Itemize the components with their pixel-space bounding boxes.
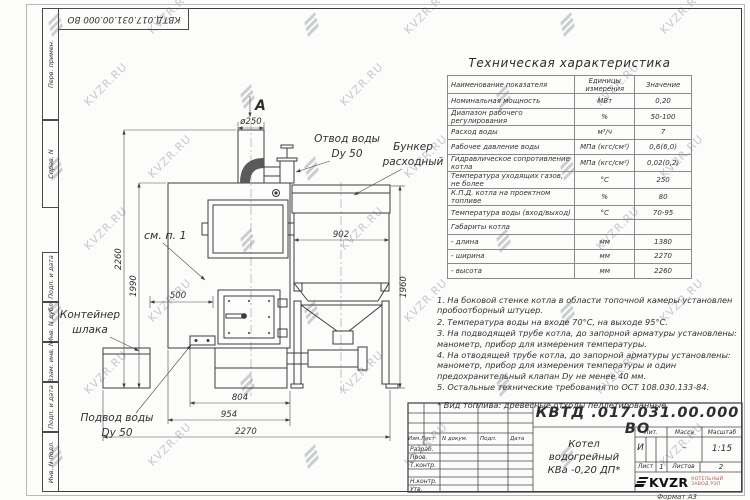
chimney-and-outlet xyxy=(238,130,297,183)
hdr-scale: Масштаб xyxy=(702,429,742,436)
hdr-doc: N докум. xyxy=(442,436,478,442)
strip-label: Справ. N xyxy=(47,149,55,178)
hdr-izm-list: Изм.Лист xyxy=(408,436,440,442)
dim-total-width: 2270 xyxy=(235,427,257,437)
note-3: 3. На подводящей трубе котла, до запорно… xyxy=(437,328,740,349)
dim-bunker-width: 902 xyxy=(333,230,349,240)
spec-col-units: Единицы измерения xyxy=(575,76,635,94)
spec-cell-name: Номинальная мощность xyxy=(448,94,575,109)
spec-cell-value: 2260 xyxy=(635,264,692,279)
spec-cell-name: Рабочее давление воды xyxy=(448,140,575,155)
spec-cell-unit: мм xyxy=(575,264,635,279)
strip-label: Подп. и дата xyxy=(47,385,55,429)
spec-cell-value xyxy=(635,220,692,235)
spec-cell-value: 2270 xyxy=(635,249,692,264)
boiler-body xyxy=(168,183,294,388)
spec-cell-name: - длина xyxy=(448,234,575,249)
spec-cell-unit: м³/ч xyxy=(575,125,635,140)
strip-label: Перв. примен. xyxy=(47,40,55,88)
strip-label: Инв. N дубл. xyxy=(47,301,55,343)
spec-row: Рабочее давление водыМПа (кгс/см²)0,6(6,… xyxy=(448,140,692,155)
lit-value: И xyxy=(635,443,646,453)
hdr-date: Дата xyxy=(510,436,533,442)
sheet-number: 1 xyxy=(656,463,667,471)
spec-row: Габариты котла xyxy=(448,220,692,235)
strip-podp-data-2: Подп. и дата xyxy=(42,382,59,432)
spec-row: Температура воды (вход/выход)°С70-95 xyxy=(448,205,692,220)
strip-vzam-inv: Взам. инв. N xyxy=(42,342,59,382)
spec-cell-unit: МПа (кгс/см²) xyxy=(575,154,635,171)
role-prov: Пров. xyxy=(410,454,427,461)
spec-row: Расход водым³/ч7 xyxy=(448,125,692,140)
spec-cell-name: Температура воды (вход/выход) xyxy=(448,205,575,220)
bunker-label-line1: Бункер xyxy=(393,141,433,153)
hdr-lit: Лит. xyxy=(635,429,667,436)
dim-base-width: 804 xyxy=(232,393,248,403)
spec-row: - длинамм1380 xyxy=(448,234,692,249)
strip-sprav-n: Справ. N xyxy=(42,120,59,208)
spec-cell-unit: мм xyxy=(575,249,635,264)
bunker-label-line2: расходный xyxy=(382,156,444,168)
spec-table-block: Техническая характеристика Наименование … xyxy=(447,56,692,279)
spec-cell-name: Расход воды xyxy=(448,125,575,140)
spec-cell-name: - ширина xyxy=(448,249,575,264)
sheet-label: Лист xyxy=(635,463,656,470)
spec-cell-value: 50-100 xyxy=(635,108,692,125)
fuel-bunker xyxy=(287,185,398,388)
dim-offset: 500 xyxy=(170,291,186,301)
dim-boiler-height: 1990 xyxy=(129,275,139,297)
outlet-label-line2: Dy 50 xyxy=(332,148,363,160)
slag-container xyxy=(103,348,150,388)
role-tkontr: Т.контр. xyxy=(410,462,436,469)
spec-table-title: Техническая характеристика xyxy=(447,56,692,70)
spec-cell-unit: МВт xyxy=(575,94,635,109)
sheets-count: 2 xyxy=(700,463,742,471)
spec-table: Наименование показателя Единицы измерени… xyxy=(447,75,692,279)
strip-inv-dubl: Инв. N дубл. xyxy=(42,302,59,342)
spec-row: Температура уходящих газов, не более°С25… xyxy=(448,171,692,188)
mass-value: – xyxy=(667,443,702,453)
role-razrab: Разраб. xyxy=(410,446,434,453)
strip-label: Подп. и дата xyxy=(47,255,55,299)
spec-cell-value: 70-95 xyxy=(635,205,692,220)
spec-cell-unit: мм xyxy=(575,234,635,249)
dim-total-height: 2260 xyxy=(114,248,124,270)
role-utv: Утв. xyxy=(410,486,423,493)
spec-cell-unit: % xyxy=(575,188,635,205)
spec-row: - ширинамм2270 xyxy=(448,249,692,264)
hdr-mass: Масса xyxy=(667,429,702,436)
flipped-doc-number: КВТД.017.031.00.000 ВО xyxy=(67,14,180,24)
spec-cell-value: 80 xyxy=(635,188,692,205)
flipped-doc-number-box: КВТД.017.031.00.000 ВО xyxy=(58,8,189,30)
spec-cell-name: Габариты котла xyxy=(448,220,575,235)
spec-row: - высотамм2260 xyxy=(448,264,692,279)
kvzr-bars-icon xyxy=(634,477,648,487)
kvzr-logo-subtitle: КОТЕЛЬНЫЙ ЗАВОД РЭП xyxy=(691,477,723,488)
spec-cell-name: Температура уходящих газов, не более xyxy=(448,171,575,188)
product-name-line1: Котел водогрейный xyxy=(535,438,633,464)
drawing-sheet: KVZR.RUKVZR.RUKVZR.RUKVZR.RUKVZR.RUKVZR.… xyxy=(0,0,750,500)
spec-row: К.П.Д. котла на проектном топливе%80 xyxy=(448,188,692,205)
strip-inv-podl: Инв. N подл. xyxy=(42,432,59,492)
kvzr-logo-text: KVZR xyxy=(649,475,688,490)
kvzr-sub-line2: ЗАВОД РЭП xyxy=(691,482,723,487)
kvzr-logo: KVZR КОТЕЛЬНЫЙ ЗАВОД РЭП xyxy=(637,474,740,490)
note-5: 5. Остальные технические требования по О… xyxy=(437,382,740,392)
container-label-line1: Контейнер xyxy=(60,309,120,321)
spec-cell-value: 250 xyxy=(635,171,692,188)
dim-body-width: 954 xyxy=(221,410,237,420)
inlet-label-line1: Подвод воды xyxy=(81,412,154,424)
inlet-label-line2: Dy 50 xyxy=(102,427,133,439)
dim-bunker-height: 1960 xyxy=(399,276,409,298)
spec-col-value: Значение xyxy=(635,76,692,94)
view-label: А xyxy=(254,98,266,114)
strip-podp-data-1: Подп. и дата xyxy=(42,252,59,302)
dim-chimney-diameter: ø250 xyxy=(239,117,261,127)
note-2: 2. Температура воды на входе 70°С, на вы… xyxy=(437,317,740,327)
format-note: Формат А3 xyxy=(597,493,750,500)
product-name-line2: КВа -0,20 ДП* xyxy=(535,464,633,477)
note-4: 4. На отводящей трубе котла, до запорной… xyxy=(437,350,740,381)
see-note-label: см. п. 1 xyxy=(144,229,187,242)
spec-row: Диапазон рабочего регулирования%50-100 xyxy=(448,108,692,125)
spec-row: Гидравлическое сопротивление котлаМПа (к… xyxy=(448,154,692,171)
spec-cell-value: 0,02(0,2) xyxy=(635,154,692,171)
role-nkontr: Н.контр. xyxy=(410,478,437,485)
product-name: Котел водогрейный КВа -0,20 ДП* xyxy=(535,438,633,477)
spec-cell-value: 7 xyxy=(635,125,692,140)
technical-notes: 1. На боковой стенке котла в области топ… xyxy=(437,295,740,411)
sheets-label: Листов xyxy=(667,463,700,470)
spec-cell-unit: МПа (кгс/см²) xyxy=(575,140,635,155)
scale-value: 1:15 xyxy=(702,444,742,454)
spec-cell-name: К.П.Д. котла на проектном топливе xyxy=(448,188,575,205)
spec-row: Номинальная мощностьМВт0,20 xyxy=(448,94,692,109)
spec-cell-name: - высота xyxy=(448,264,575,279)
spec-cell-unit: % xyxy=(575,108,635,125)
spec-cell-value: 0,20 xyxy=(635,94,692,109)
strip-label: Инв. N подл. xyxy=(47,441,55,483)
spec-cell-value: 1380 xyxy=(635,234,692,249)
container-label-line2: шлака xyxy=(72,324,108,336)
strip-label: Взам. инв. N xyxy=(47,341,55,383)
spec-col-name: Наименование показателя xyxy=(448,76,575,94)
spec-cell-name: Гидравлическое сопротивление котла xyxy=(448,154,575,171)
spec-cell-unit: °С xyxy=(575,171,635,188)
spec-cell-unit: °С xyxy=(575,205,635,220)
note-1: 1. На боковой стенке котла в области топ… xyxy=(437,295,740,316)
hdr-sign: Подп. xyxy=(480,436,508,442)
spec-cell-name: Диапазон рабочего регулирования xyxy=(448,108,575,125)
spec-cell-value: 0,6(6,0) xyxy=(635,140,692,155)
strip-perv-primen: Перв. примен. xyxy=(42,8,59,120)
spec-header-row: Наименование показателя Единицы измерени… xyxy=(448,76,692,94)
spec-cell-unit xyxy=(575,220,635,235)
outlet-label-line1: Отвод воды xyxy=(314,133,380,145)
